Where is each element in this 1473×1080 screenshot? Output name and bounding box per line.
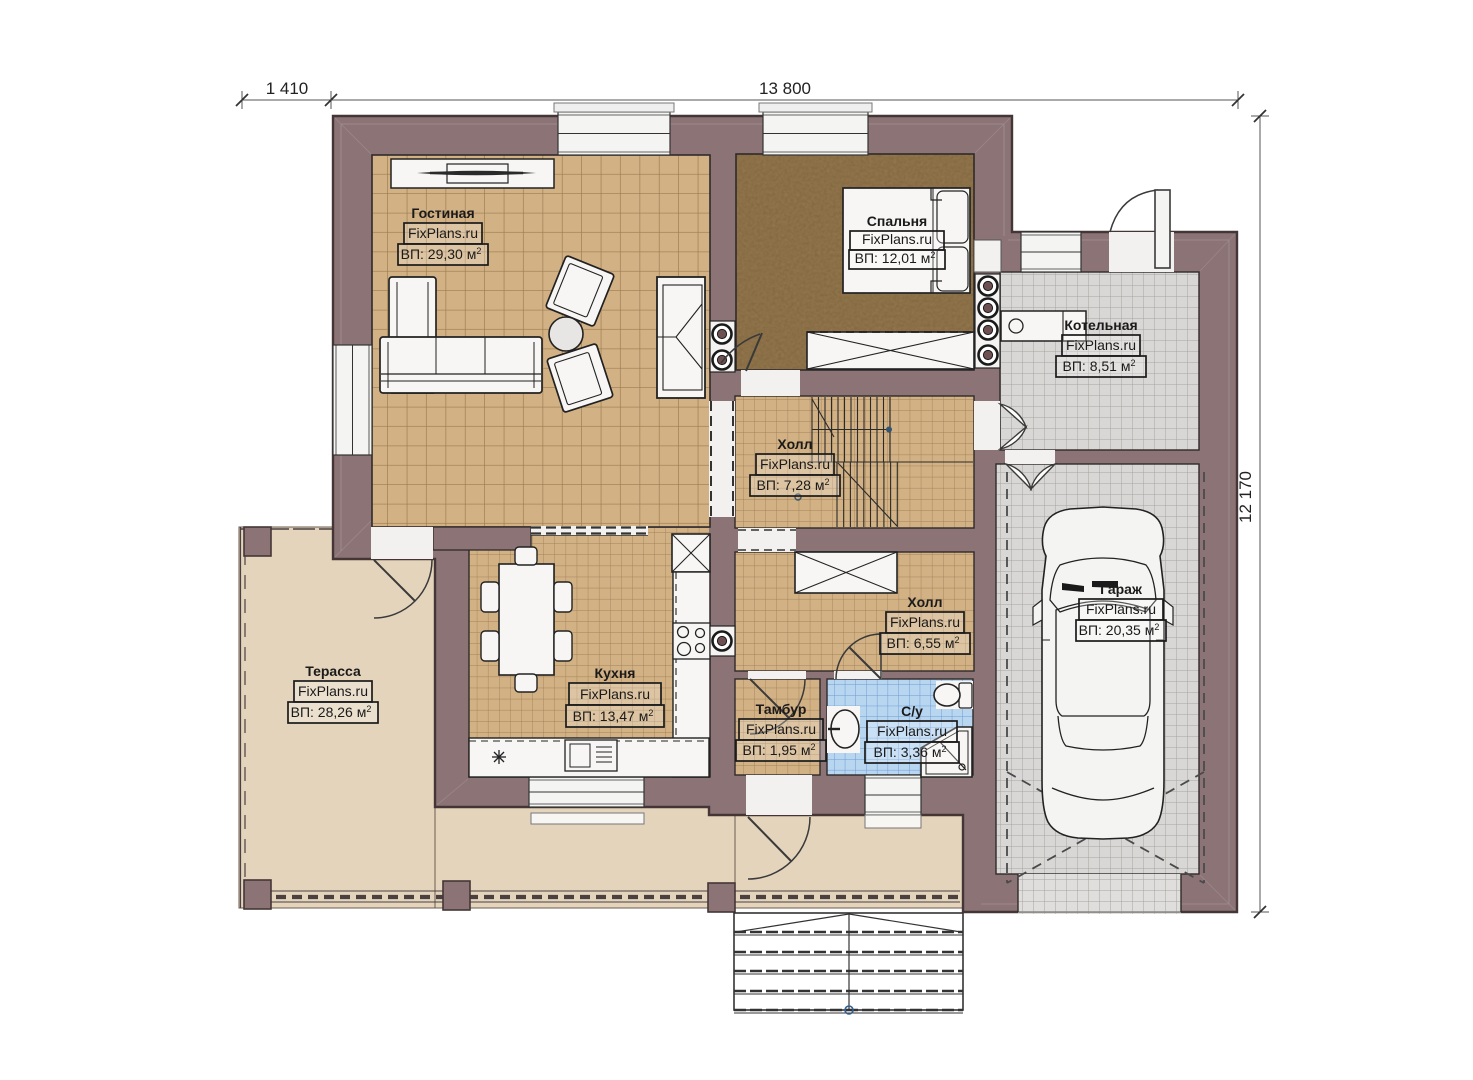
svg-text:FixPlans.ru: FixPlans.ru: [298, 683, 368, 699]
svg-text:FixPlans.ru: FixPlans.ru: [408, 225, 478, 241]
svg-text:Котельная: Котельная: [1064, 317, 1137, 333]
svg-text:Тамбур: Тамбур: [756, 701, 807, 717]
svg-text:12 170: 12 170: [1236, 471, 1255, 523]
svg-text:ВП: 7,28 м2: ВП: 7,28 м2: [757, 477, 830, 493]
svg-text:Кухня: Кухня: [595, 665, 636, 681]
svg-text:ВП: 12,01 м2: ВП: 12,01 м2: [855, 250, 936, 266]
svg-text:FixPlans.ru: FixPlans.ru: [1066, 337, 1136, 353]
svg-text:FixPlans.ru: FixPlans.ru: [877, 723, 947, 739]
svg-text:С/у: С/у: [901, 703, 923, 719]
svg-text:Холл: Холл: [907, 594, 942, 610]
svg-text:FixPlans.ru: FixPlans.ru: [1086, 601, 1156, 617]
svg-text:1 410: 1 410: [266, 79, 309, 98]
svg-text:FixPlans.ru: FixPlans.ru: [890, 614, 960, 630]
svg-text:FixPlans.ru: FixPlans.ru: [580, 686, 650, 702]
svg-text:13 800: 13 800: [759, 79, 811, 98]
svg-text:ВП: 8,51 м2: ВП: 8,51 м2: [1063, 358, 1136, 374]
svg-text:ВП: 6,55 м2: ВП: 6,55 м2: [887, 635, 960, 651]
svg-text:ВП: 20,35 м2: ВП: 20,35 м2: [1079, 622, 1160, 638]
svg-text:Холл: Холл: [777, 436, 812, 452]
svg-text:Гараж: Гараж: [1100, 581, 1143, 597]
svg-text:ВП: 28,26 м2: ВП: 28,26 м2: [291, 704, 372, 720]
svg-text:ВП: 13,47 м2: ВП: 13,47 м2: [573, 708, 654, 724]
svg-text:Спальня: Спальня: [867, 213, 927, 229]
svg-text:FixPlans.ru: FixPlans.ru: [862, 231, 932, 247]
svg-text:FixPlans.ru: FixPlans.ru: [760, 456, 830, 472]
svg-text:ВП: 29,30 м2: ВП: 29,30 м2: [401, 246, 482, 262]
svg-text:Терасса: Терасса: [305, 663, 361, 679]
svg-text:ВП: 3,36 м2: ВП: 3,36 м2: [874, 744, 947, 760]
svg-text:Гостиная: Гостиная: [411, 205, 474, 221]
svg-text:FixPlans.ru: FixPlans.ru: [746, 721, 816, 737]
svg-text:ВП: 1,95 м2: ВП: 1,95 м2: [743, 742, 816, 758]
